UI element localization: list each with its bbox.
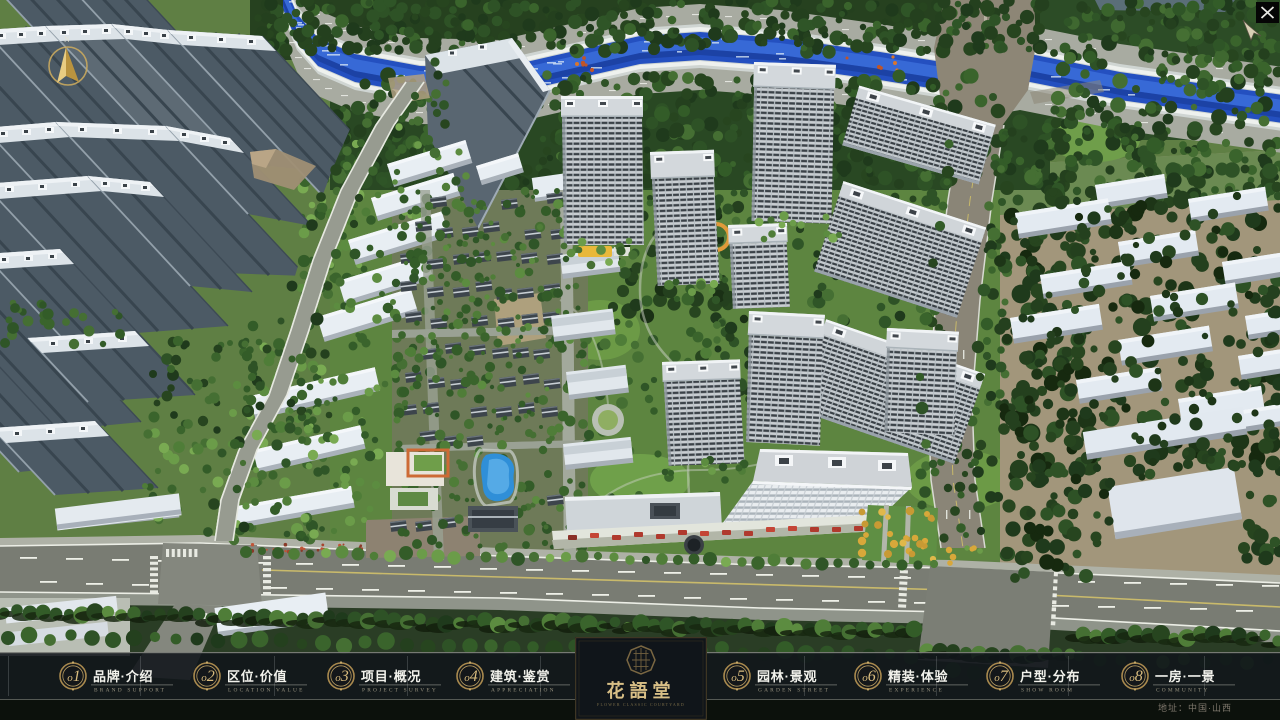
svg-text:N: N [64, 35, 70, 44]
svg-text:园林·景观: 园林·景观 [757, 669, 817, 684]
svg-text:BRAND SUPPORT: BRAND SUPPORT [94, 688, 166, 694]
svg-text:EXPERIENCE: EXPERIENCE [889, 688, 944, 694]
svg-text:COMMUNITY: COMMUNITY [1156, 688, 1210, 694]
svg-text:区位·价值: 区位·价值 [227, 669, 287, 684]
svg-text:PROJECT SURVEY: PROJECT SURVEY [362, 688, 438, 694]
svg-text:建筑·鉴赏: 建筑·鉴赏 [490, 669, 550, 684]
svg-text:GARDEN STREET: GARDEN STREET [758, 688, 830, 694]
svg-text:地址：中国·山西: 地址：中国·山西 [1158, 702, 1232, 713]
svg-text:项目·概况: 项目·概况 [361, 669, 421, 684]
svg-text:一房·一景: 一房·一景 [1155, 669, 1215, 684]
svg-text:花語堂: 花語堂 [607, 680, 676, 701]
svg-text:户型·分布: 户型·分布 [1020, 669, 1080, 684]
svg-text:LOCATION VALUE: LOCATION VALUE [228, 688, 305, 694]
svg-text:SHOW ROOM: SHOW ROOM [1021, 688, 1074, 694]
svg-text:品牌·介绍: 品牌·介绍 [93, 669, 153, 684]
svg-text:APPRECIATION: APPRECIATION [491, 688, 556, 694]
svg-text:FLOWER CLASSIC COURTYARD: FLOWER CLASSIC COURTYARD [597, 702, 685, 707]
svg-text:精装·体验: 精装·体验 [888, 669, 949, 684]
